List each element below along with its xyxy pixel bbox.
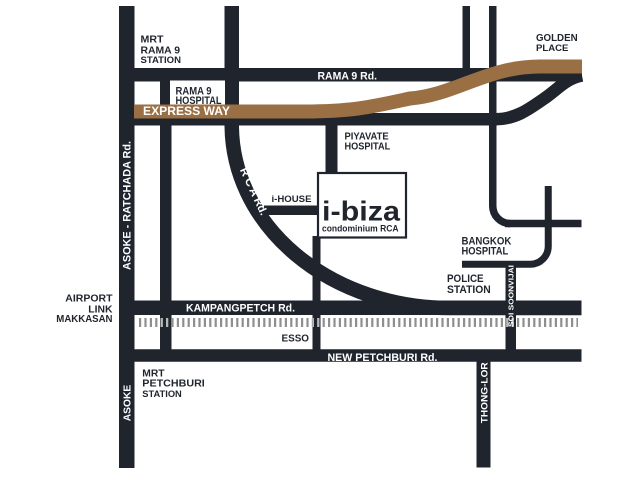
- svg-text:i-biza: i-biza: [322, 196, 401, 227]
- svg-text:MAKKASAN: MAKKASAN: [56, 314, 112, 325]
- svg-text:SOI SOONVIJAI: SOI SOONVIJAI: [509, 265, 516, 327]
- svg-text:RAMA 9 Rd.: RAMA 9 Rd.: [318, 71, 378, 83]
- svg-text:ASOKE: ASOKE: [122, 385, 134, 422]
- svg-text:HOSPITAL: HOSPITAL: [345, 141, 391, 152]
- svg-text:THONG-LOR: THONG-LOR: [480, 362, 490, 423]
- svg-text:STATION: STATION: [141, 55, 182, 66]
- svg-text:AIRPORT: AIRPORT: [65, 292, 113, 304]
- svg-text:condominium RCA: condominium RCA: [322, 224, 399, 235]
- svg-text:PLACE: PLACE: [536, 43, 568, 54]
- svg-text:STATION: STATION: [447, 284, 491, 296]
- svg-text:NEW PETCHBURI Rd.: NEW PETCHBURI Rd.: [328, 352, 438, 364]
- svg-text:i-HOUSE: i-HOUSE: [272, 194, 312, 204]
- svg-text:STATION: STATION: [142, 389, 182, 400]
- svg-text:ESSO: ESSO: [282, 333, 310, 345]
- svg-text:KAMPANGPETCH Rd.: KAMPANGPETCH Rd.: [186, 303, 295, 315]
- svg-text:ASOKE - RATCHADA Rd.: ASOKE - RATCHADA Rd.: [122, 141, 134, 270]
- svg-text:EXPRESS WAY: EXPRESS WAY: [143, 106, 230, 118]
- svg-text:HOSPITAL: HOSPITAL: [462, 246, 509, 258]
